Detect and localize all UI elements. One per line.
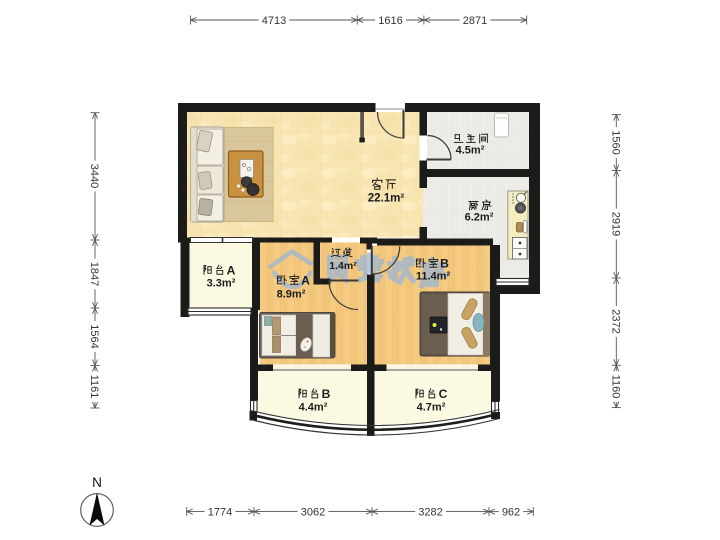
svg-text:6.2m²: 6.2m² xyxy=(465,212,494,224)
svg-text:3.3m²: 3.3m² xyxy=(207,278,236,290)
svg-text:4.7m²: 4.7m² xyxy=(417,402,446,414)
svg-text:4.4m²: 4.4m² xyxy=(299,402,328,414)
svg-text:11.4m²: 11.4m² xyxy=(416,271,451,283)
svg-text:4713: 4713 xyxy=(262,15,286,27)
svg-text:1560: 1560 xyxy=(610,130,622,154)
svg-text:1616: 1616 xyxy=(378,15,402,27)
svg-text:1774: 1774 xyxy=(208,506,232,518)
svg-text:22.1m²: 22.1m² xyxy=(368,193,405,205)
svg-text:962: 962 xyxy=(502,506,520,518)
svg-text:4.5m²: 4.5m² xyxy=(456,145,485,157)
svg-text:1564: 1564 xyxy=(88,324,100,348)
svg-text:B: B xyxy=(440,256,449,270)
svg-text:N: N xyxy=(92,475,102,490)
svg-text:2871: 2871 xyxy=(463,15,487,27)
svg-text:1.4m²: 1.4m² xyxy=(329,260,357,272)
svg-text:1847: 1847 xyxy=(88,262,100,286)
svg-text:3062: 3062 xyxy=(301,506,325,518)
svg-text:3282: 3282 xyxy=(418,506,442,518)
svg-text:3440: 3440 xyxy=(88,164,100,188)
svg-text:A: A xyxy=(227,263,236,277)
svg-text:B: B xyxy=(322,387,331,401)
svg-text:C: C xyxy=(439,387,448,401)
svg-text:1161: 1161 xyxy=(88,375,100,399)
svg-text:1160: 1160 xyxy=(610,375,622,399)
svg-text:2372: 2372 xyxy=(610,309,622,333)
svg-text:2919: 2919 xyxy=(610,212,622,236)
svg-text:8.9m²: 8.9m² xyxy=(277,289,306,301)
svg-text:A: A xyxy=(301,273,310,287)
